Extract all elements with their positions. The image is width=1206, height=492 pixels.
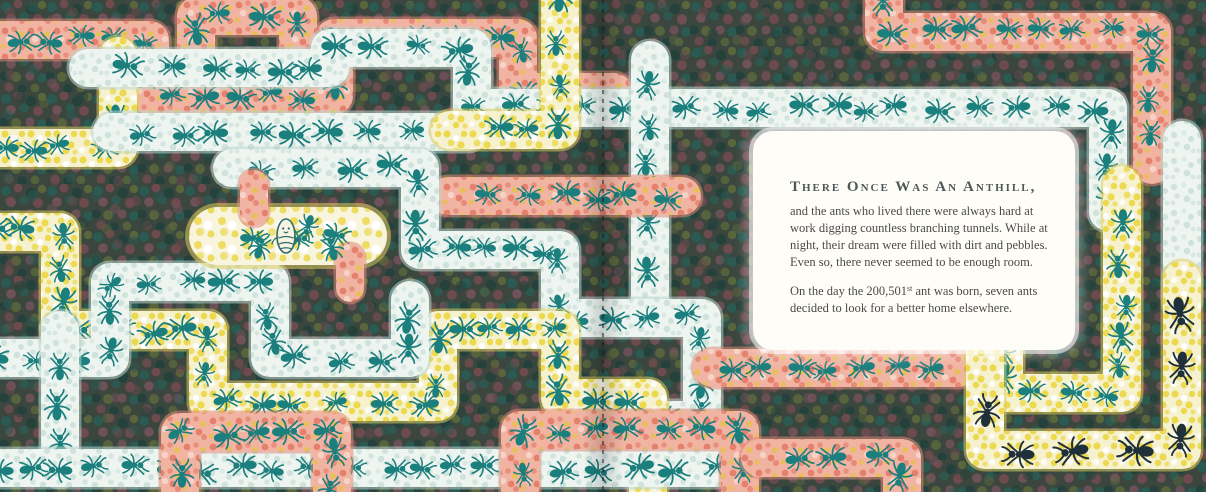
tunnel-white-bottom-band: [0, 452, 740, 488]
tunnel-salmon-fold-stub: [448, 181, 683, 213]
story-paragraph-1: and the ants who lived there were always…: [790, 203, 1053, 271]
story-line: On the day the 200,501st ant was born, s…: [790, 280, 1053, 300]
story-text: On the day the 200,501: [790, 284, 907, 298]
story-heading: There Once Was An Anthill,: [790, 179, 1053, 195]
story-line: work digging countless branching tunnels…: [790, 220, 1053, 237]
tunnel-salmon-under-panel: [712, 352, 958, 382]
story-line: Even so, there never seemed to be enough…: [790, 254, 1053, 271]
tunnel-white-upper-band: [112, 117, 469, 148]
story-paragraph-2: On the day the 200,501st ant was born, s…: [790, 280, 1053, 317]
story-text: ant was born, seven ants: [912, 284, 1037, 298]
story-panel: There Once Was An Anthill, and the ants …: [753, 131, 1075, 350]
story-line: night, their dream were filled with dirt…: [790, 237, 1053, 254]
story-line: and the ants who lived there were always…: [790, 203, 1053, 220]
story-line: decided to look for a better home elsewh…: [790, 300, 1053, 317]
book-spread: There Once Was An Anthill, and the ants …: [0, 0, 1206, 492]
